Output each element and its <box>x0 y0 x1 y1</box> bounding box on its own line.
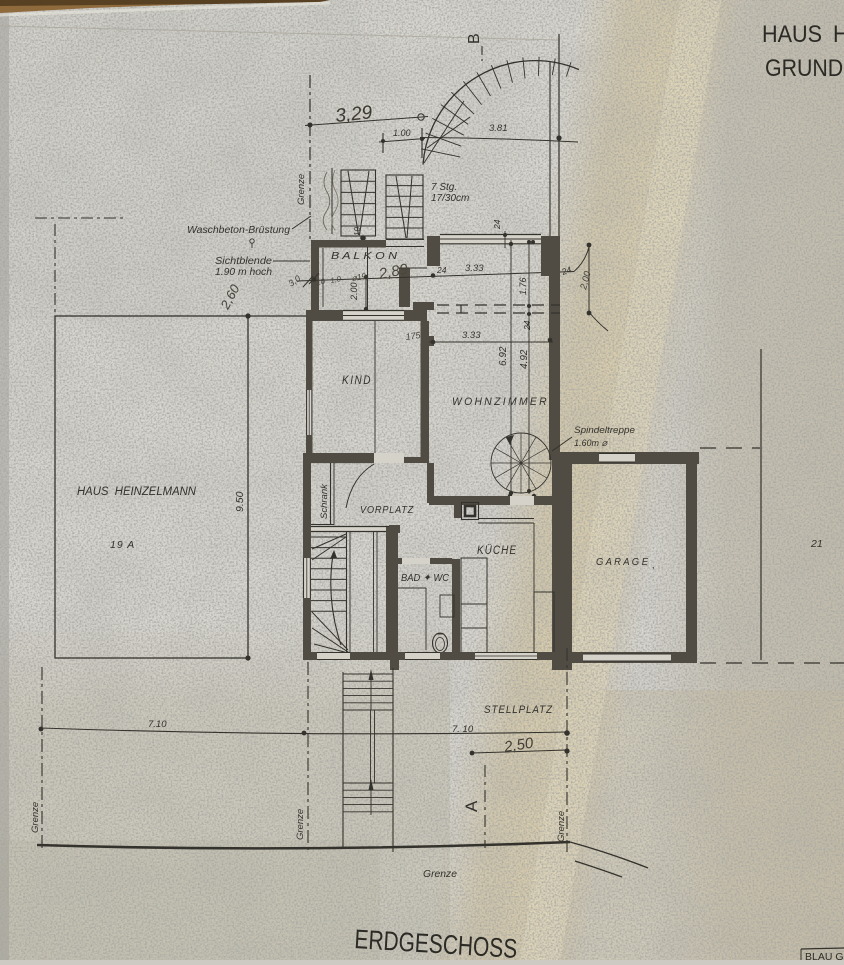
svg-text:Spindeltreppe: Spindeltreppe <box>574 425 635 436</box>
svg-text:2.00: 2.00 <box>349 282 359 301</box>
svg-text:GRUNDRISS: GRUNDRISS <box>765 55 844 82</box>
svg-text:KÜCHE: KÜCHE <box>477 545 517 557</box>
svg-text:G A R A G E: G A R A G E <box>596 556 649 568</box>
svg-text:17/30cm: 17/30cm <box>431 193 469 204</box>
svg-text:Grenze: Grenze <box>30 802 41 833</box>
svg-text:24: 24 <box>436 265 447 275</box>
svg-text:VORPLATZ: VORPLATZ <box>360 504 414 516</box>
svg-text:3.33: 3.33 <box>465 263 484 274</box>
svg-text:A: A <box>462 800 481 812</box>
svg-text:HAUS: HAUS <box>762 21 822 48</box>
svg-text:24: 24 <box>492 219 502 230</box>
svg-text:3.81: 3.81 <box>489 123 508 134</box>
svg-text:4.92: 4.92 <box>519 349 530 369</box>
svg-text:9.50: 9.50 <box>234 491 246 512</box>
svg-text:Grenze: Grenze <box>423 868 457 880</box>
svg-text:KIND: KIND <box>342 375 372 387</box>
svg-text:10: 10 <box>353 227 362 236</box>
svg-text:Schrank: Schrank <box>319 483 330 519</box>
svg-text:Waschbeton-Brüstung: Waschbeton-Brüstung <box>187 225 290 236</box>
svg-text:6.92: 6.92 <box>498 346 509 366</box>
svg-text:Grenze: Grenze <box>295 809 306 840</box>
svg-text:HAUS HEINZELMANN: HAUS HEINZELMANN <box>77 486 197 498</box>
svg-text:Sichtblende: Sichtblende <box>215 256 272 267</box>
svg-text:B A L K O N: B A L K O N <box>331 251 398 262</box>
svg-text:3.33: 3.33 <box>462 330 481 341</box>
svg-text:1.76: 1.76 <box>518 277 528 295</box>
svg-text:STELLPLATZ: STELLPLATZ <box>484 704 553 716</box>
svg-text:1.00: 1.00 <box>393 128 411 138</box>
svg-text:BAD ✦ WC: BAD ✦ WC <box>401 572 449 584</box>
svg-text:1.60m ⌀: 1.60m ⌀ <box>574 438 608 449</box>
svg-text:7. 10: 7. 10 <box>452 724 474 735</box>
svg-text:B: B <box>466 33 483 44</box>
svg-text:Grenze: Grenze <box>296 174 307 205</box>
svg-text:21: 21 <box>810 538 823 550</box>
svg-text:Grenze: Grenze <box>556 811 567 842</box>
svg-text:BLAU G.: BLAU G. <box>805 951 844 960</box>
svg-text:19 A: 19 A <box>110 539 135 551</box>
svg-text:,: , <box>652 560 655 570</box>
svg-text:1.90 m hoch: 1.90 m hoch <box>215 267 272 278</box>
svg-text:7 Stg.: 7 Stg. <box>431 182 457 193</box>
svg-text:HE: HE <box>833 21 844 48</box>
svg-text:WOHNZIMMER: WOHNZIMMER <box>452 396 549 408</box>
svg-text:7.10: 7.10 <box>148 719 167 730</box>
svg-text:3,29: 3,29 <box>334 102 373 127</box>
